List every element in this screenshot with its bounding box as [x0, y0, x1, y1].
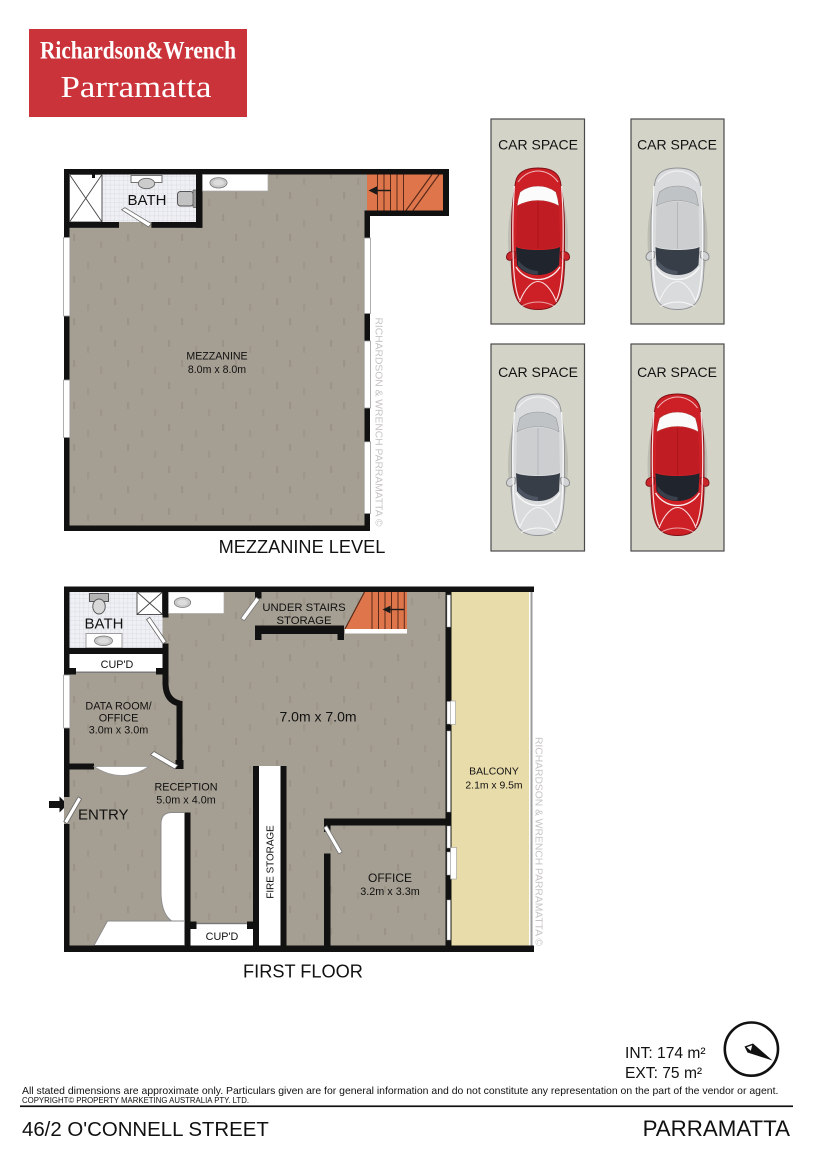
svg-text:3.0m x 3.0m: 3.0m x 3.0m	[89, 725, 148, 737]
svg-text:UNDER STAIRS: UNDER STAIRS	[262, 602, 346, 614]
svg-text:RICHARDSON & WRENCH PARRAMATTA: RICHARDSON & WRENCH PARRAMATTA ©	[373, 318, 384, 527]
svg-text:8.0m x 8.0m: 8.0m x 8.0m	[188, 364, 246, 376]
svg-text:OFFICE: OFFICE	[99, 713, 139, 725]
svg-text:OFFICE: OFFICE	[368, 871, 412, 885]
svg-text:RECEPTION: RECEPTION	[155, 782, 218, 794]
svg-text:BATH: BATH	[85, 616, 124, 633]
svg-text:DATA ROOM/: DATA ROOM/	[85, 701, 151, 713]
svg-text:FIRST FLOOR: FIRST FLOOR	[243, 962, 363, 982]
svg-text:EXT: 75 m²: EXT: 75 m²	[625, 1065, 702, 1082]
svg-text:CAR SPACE: CAR SPACE	[637, 364, 717, 380]
svg-text:CUP'D: CUP'D	[206, 931, 239, 943]
svg-text:BATH: BATH	[128, 192, 167, 209]
svg-text:BALCONY: BALCONY	[469, 767, 519, 778]
svg-text:FIRE STORAGE: FIRE STORAGE	[266, 825, 277, 899]
svg-text:5.0m x 4.0m: 5.0m x 4.0m	[156, 795, 215, 807]
svg-text:MEZZANINE: MEZZANINE	[186, 351, 247, 363]
svg-text:STORAGE: STORAGE	[276, 615, 331, 627]
svg-text:3.2m x 3.3m: 3.2m x 3.3m	[360, 886, 419, 898]
svg-text:CAR SPACE: CAR SPACE	[498, 364, 578, 380]
svg-text:Parramatta: Parramatta	[61, 69, 212, 104]
svg-text:CAR SPACE: CAR SPACE	[498, 137, 578, 153]
svg-text:RICHARDSON & WRENCH PARRAMATTA: RICHARDSON & WRENCH PARRAMATTA ©	[533, 737, 544, 946]
svg-text:CUP'D: CUP'D	[101, 659, 134, 671]
svg-text:ENTRY: ENTRY	[78, 807, 129, 824]
svg-text:INT: 174 m²: INT: 174 m²	[625, 1045, 706, 1062]
svg-text:CAR SPACE: CAR SPACE	[637, 137, 717, 153]
svg-text:MEZZANINE LEVEL: MEZZANINE LEVEL	[219, 537, 386, 557]
svg-text:46/2 O'CONNELL STREET: 46/2 O'CONNELL STREET	[22, 1119, 269, 1141]
svg-text:COPYRIGHT© PROPERTY MARKETING: COPYRIGHT© PROPERTY MARKETING AUSTRALIA …	[22, 1096, 249, 1105]
svg-text:7.0m x 7.0m: 7.0m x 7.0m	[279, 709, 356, 725]
svg-text:2.1m x 9.5m: 2.1m x 9.5m	[465, 781, 522, 792]
svg-text:Richardson&Wrench: Richardson&Wrench	[40, 38, 236, 65]
svg-text:PARRAMATTA: PARRAMATTA	[643, 1116, 791, 1141]
